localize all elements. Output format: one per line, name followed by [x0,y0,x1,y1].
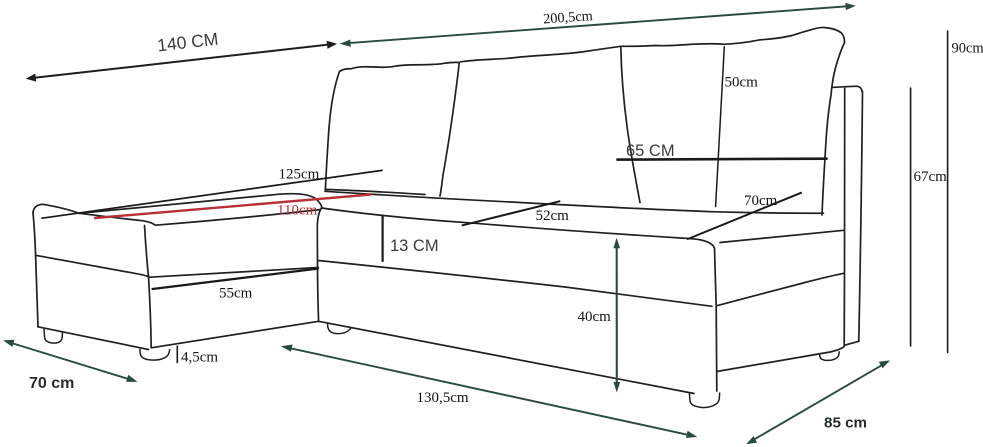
svg-text:40cm: 40cm [578,309,612,325]
svg-text:200,5cm: 200,5cm [543,8,594,27]
svg-text:130,5cm: 130,5cm [417,390,469,406]
svg-text:4,5cm: 4,5cm [181,350,218,366]
svg-text:70 cm: 70 cm [29,375,74,392]
svg-text:13 CM: 13 CM [390,237,439,255]
svg-text:65 CM: 65 CM [626,142,675,160]
svg-text:50cm: 50cm [725,75,759,91]
svg-text:85 cm: 85 cm [824,415,867,432]
svg-text:90cm: 90cm [952,41,983,57]
svg-text:67cm: 67cm [914,169,948,185]
svg-text:125cm: 125cm [279,167,320,183]
svg-text:55cm: 55cm [219,286,253,302]
svg-text:140 CM: 140 CM [156,29,219,56]
svg-text:70cm: 70cm [744,193,778,209]
svg-text:110cm: 110cm [277,203,318,219]
svg-text:52cm: 52cm [536,208,570,224]
